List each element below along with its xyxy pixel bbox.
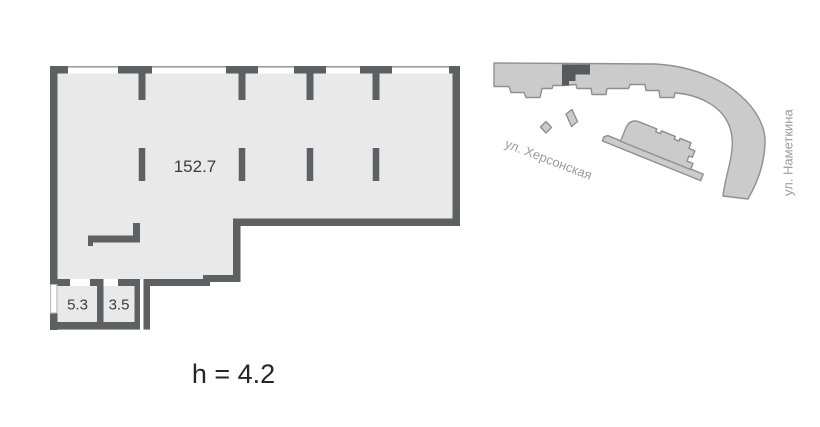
- room2-area-label: 3.5: [109, 297, 130, 314]
- street-label-khersonskaya: ул. Херсонская: [503, 136, 594, 183]
- door-opening-room2: [104, 279, 119, 286]
- floor-plan-page: 152.7 5.3 3.5 h = 4.2: [0, 0, 820, 427]
- site-buildings-outline: [494, 63, 765, 199]
- site-shape-small-2: [566, 110, 578, 127]
- plan-canvas: 152.7 5.3 3.5 h = 4.2: [0, 0, 820, 427]
- room1-area-label: 5.3: [67, 297, 88, 314]
- floor-area: [50, 66, 460, 330]
- shaft-gap: [140, 279, 144, 330]
- site-shape-small-1: [541, 122, 552, 134]
- site-plan: ул. Херсонская ул. Наметкина: [494, 63, 796, 199]
- main-area-label: 152.7: [174, 157, 217, 176]
- floor-plan: 152.7 5.3 3.5 h = 4.2: [50, 66, 460, 389]
- site-buildings: [494, 63, 765, 199]
- entry-door-opening: [51, 285, 57, 314]
- ceiling-height-label: h = 4.2: [192, 359, 275, 389]
- second-building: [602, 112, 712, 181]
- street-label-nametkina: ул. Наметкина: [781, 109, 796, 196]
- door-opening-room1: [70, 279, 90, 286]
